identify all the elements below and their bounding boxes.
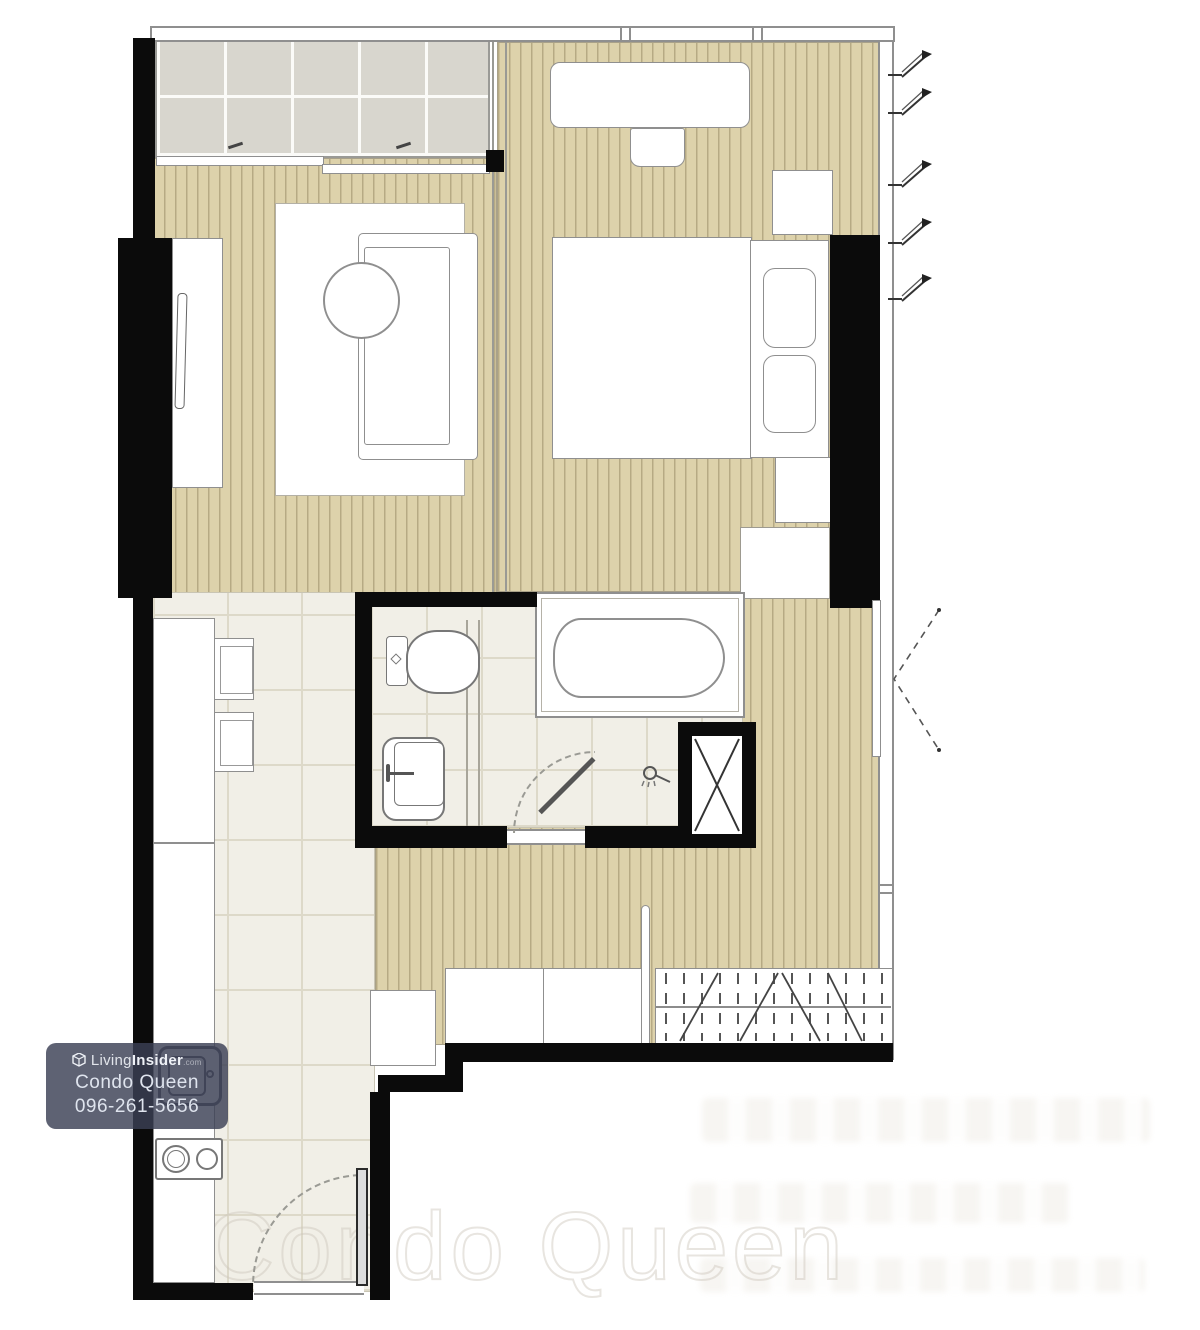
wardrobe-hatch — [656, 969, 891, 1044]
living-bedroom-partition — [492, 42, 507, 594]
bed-mattress — [552, 237, 752, 459]
bathtub — [553, 618, 725, 698]
basin-spout — [388, 772, 414, 775]
casement-window-frame — [872, 600, 881, 757]
right-wall-mullion-tick — [878, 884, 894, 894]
built-in-cabinet — [543, 968, 643, 1046]
window-mullion-tick — [620, 26, 631, 42]
awning-window-tick — [888, 158, 934, 192]
top-window-wall — [150, 26, 895, 42]
watermark-badge: LivingInsider.com Condo Queen 096-261-56… — [46, 1043, 228, 1129]
wall — [118, 238, 172, 598]
window-mullion-tick — [752, 26, 763, 42]
wardrobe — [655, 968, 893, 1046]
counter-appliance-inner — [220, 720, 253, 766]
shower-head-icon — [640, 760, 678, 790]
counter-appliance-inner — [220, 646, 253, 694]
wall — [133, 598, 153, 1300]
cube-logo-icon — [72, 1053, 86, 1067]
entrance-door-leaf — [356, 1168, 368, 1286]
service-shaft-inner — [692, 736, 742, 834]
floor-plan-canvas: Condo Queen — [0, 0, 1200, 1330]
bathroom-wall — [355, 592, 372, 848]
nightstand — [772, 170, 833, 235]
hall-cabinet — [370, 990, 436, 1066]
watermark-phone: 096-261-5656 — [46, 1096, 228, 1118]
wall — [449, 1043, 893, 1062]
stove-burner-large-inner — [167, 1150, 185, 1168]
basin-tap — [386, 764, 390, 782]
wall — [133, 1283, 253, 1300]
wall — [830, 235, 880, 608]
wall — [370, 1092, 390, 1300]
balcony-floor — [155, 40, 490, 158]
awning-window-tick — [888, 272, 934, 306]
wardrobe-partition-rod — [641, 905, 650, 1047]
brand-prefix: Living — [91, 1052, 132, 1069]
desk-chair — [630, 128, 685, 167]
watermark-agent-name: Condo Queen — [46, 1072, 228, 1094]
x-cross-mark — [692, 736, 742, 834]
desk — [550, 62, 750, 128]
wall — [133, 38, 155, 238]
toilet-bowl — [406, 630, 480, 694]
watermark-brand-row: LivingInsider.com — [46, 1052, 228, 1069]
brand-tld: .com — [183, 1058, 202, 1067]
sliding-door-panel — [322, 164, 490, 174]
casement-window-swing — [881, 604, 943, 756]
bathroom-wall — [355, 592, 537, 607]
pillow — [763, 355, 816, 433]
bathroom-wall — [355, 826, 507, 848]
awning-window-tick — [888, 86, 934, 120]
coffee-table — [323, 262, 400, 339]
brand-suffix: Insider — [132, 1052, 183, 1069]
built-in-cabinet — [445, 968, 545, 1046]
pillow — [763, 268, 816, 348]
nightstand — [775, 457, 831, 523]
bathroom-door-swing — [513, 751, 595, 833]
stove-burner-small — [196, 1148, 218, 1170]
right-window-wall — [878, 42, 894, 1060]
entrance-door-swing — [252, 1174, 364, 1286]
wall — [486, 150, 504, 172]
bedside-bench — [740, 527, 830, 599]
awning-window-tick — [888, 48, 934, 82]
awning-window-tick — [888, 216, 934, 250]
faint-watermark-line — [702, 1098, 1150, 1142]
sliding-door-panel — [156, 156, 324, 166]
kitchen-counter — [153, 618, 215, 843]
